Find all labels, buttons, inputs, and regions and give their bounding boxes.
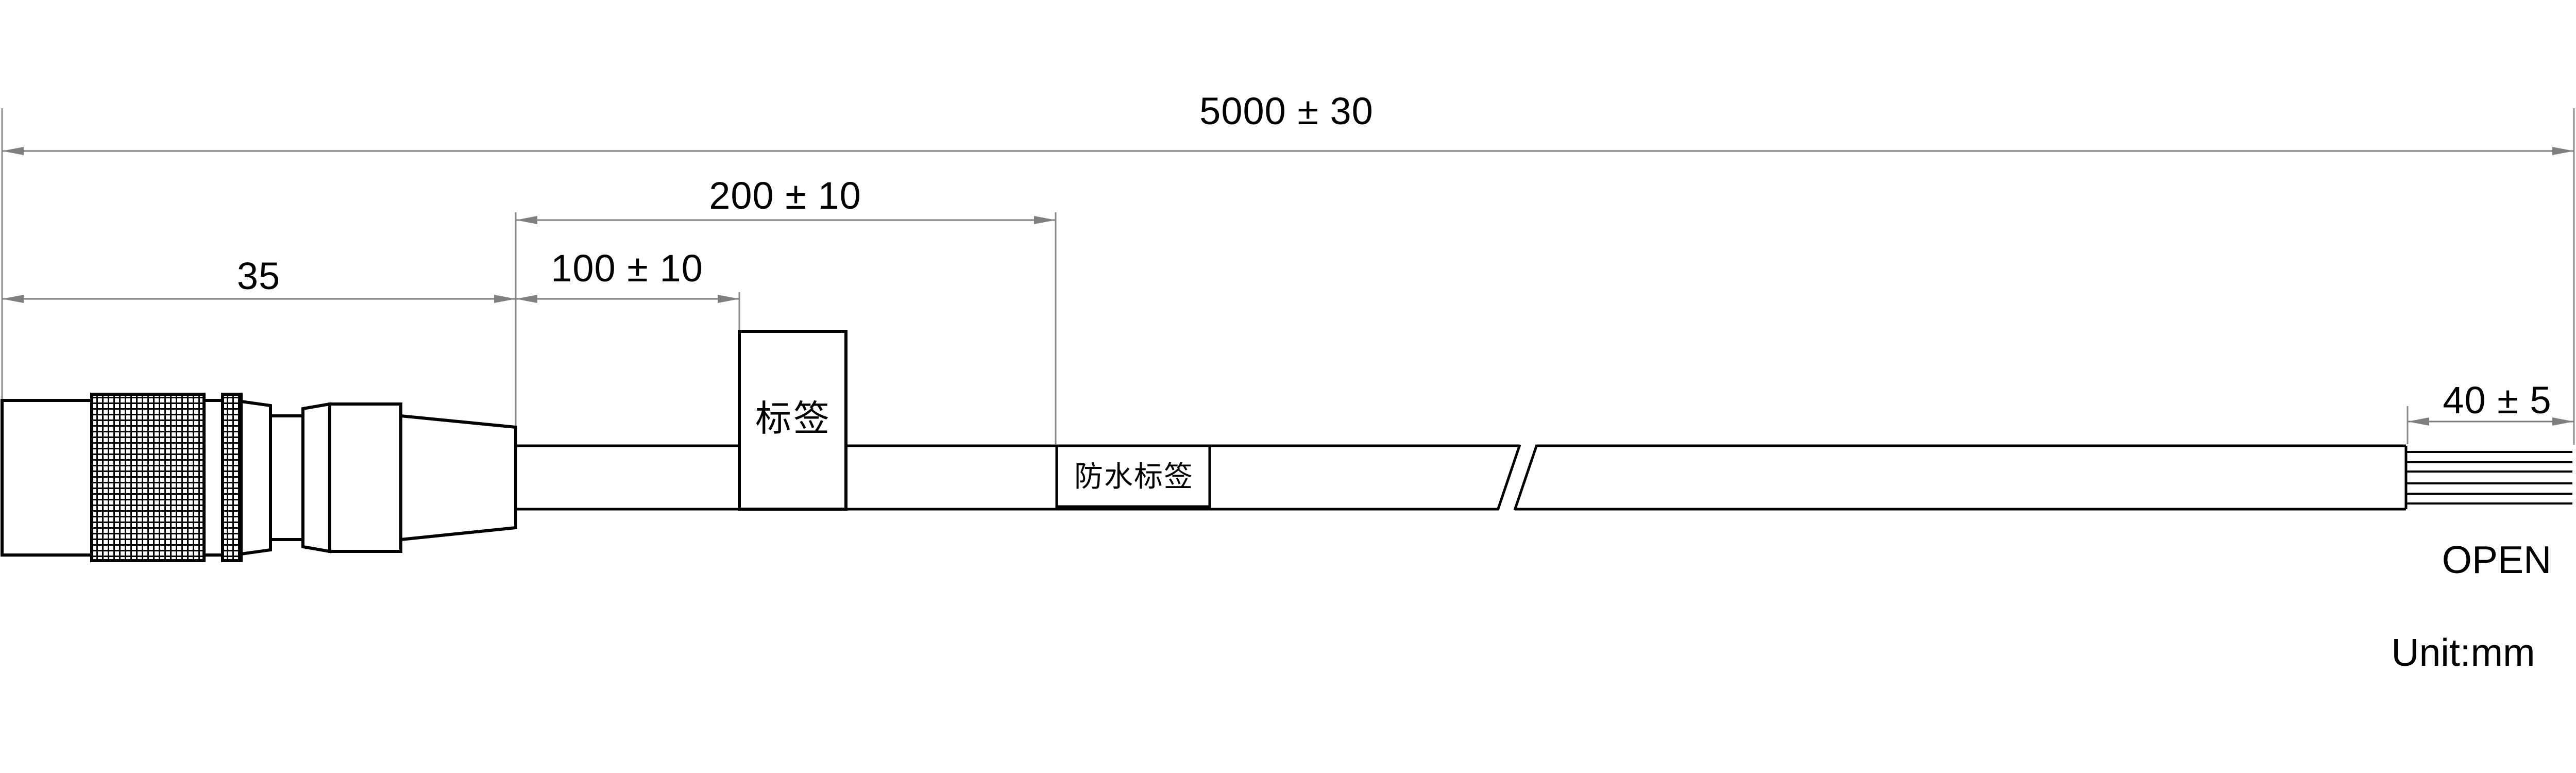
technical-drawing: 5000 ± 30 200 ± 10 35 100 ± 10 40 ± 5 标签…	[0, 0, 2576, 773]
connector-strain-relief-boot	[401, 416, 516, 540]
break-symbol-right-slash	[1515, 445, 1537, 510]
arrow-label-span-right-icon	[1034, 216, 1056, 224]
arrow-strip-right-icon	[2552, 417, 2574, 426]
stripped-wires	[2406, 452, 2572, 503]
dimension-text-label-offset: 100 ± 10	[551, 248, 703, 289]
connector-knurled-ring-large	[92, 394, 204, 561]
arrow-connector-right-icon	[494, 295, 516, 303]
open-end-text: OPEN	[2442, 539, 2552, 581]
waterproof-tag-text: 防水标签	[1074, 461, 1194, 492]
connector-neck	[270, 416, 303, 540]
arrow-overall-left-icon	[2, 147, 24, 155]
extension-lines	[2, 108, 2574, 445]
dimension-text-connector: 35	[237, 256, 280, 297]
dimension-text-label-span: 200 ± 10	[709, 175, 861, 216]
arrow-connector-left-icon	[2, 295, 24, 303]
arrow-strip-left-icon	[2408, 417, 2429, 426]
dimension-lines	[2, 151, 2574, 422]
dimension-text-overall: 5000 ± 30	[1199, 91, 1374, 132]
connector-collar	[303, 404, 330, 551]
arrow-label-span-left-icon	[516, 216, 537, 224]
connector-back-cap	[2, 400, 92, 555]
connector-groove	[204, 400, 223, 555]
connector	[2, 394, 516, 561]
connector-knurled-ring-small	[223, 394, 241, 561]
unit-note-text: Unit:mm	[2391, 632, 2535, 674]
connector-body	[330, 404, 401, 551]
label-tag-text: 标签	[755, 399, 832, 439]
dimension-arrows	[2, 147, 2574, 426]
connector-taper-step	[241, 401, 270, 554]
dimension-text-strip: 40 ± 5	[2443, 380, 2551, 421]
arrow-label-offset-left-icon	[516, 295, 537, 303]
arrow-label-offset-right-icon	[718, 295, 739, 303]
arrow-overall-right-icon	[2552, 147, 2574, 155]
break-symbol-left-slash	[1498, 445, 1520, 510]
